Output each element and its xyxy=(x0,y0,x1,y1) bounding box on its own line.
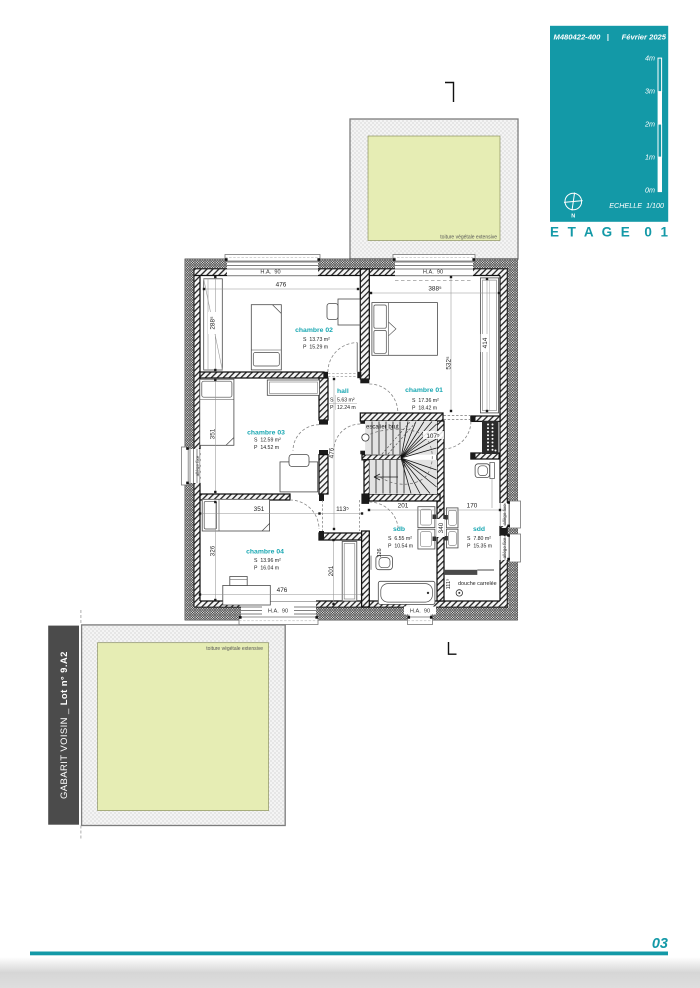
svg-text:S 7.80 m²: S 7.80 m² xyxy=(467,536,491,542)
svg-text:0m: 0m xyxy=(645,186,655,195)
svg-text:E T A G E 0 1: E T A G E 0 1 xyxy=(550,225,668,240)
svg-text:S 12.59 m²: S 12.59 m² xyxy=(254,438,281,444)
svg-text:toiture végétale extensive: toiture végétale extensive xyxy=(206,646,263,652)
svg-text:201: 201 xyxy=(398,503,409,510)
svg-text:M480422-400 |: M480422-400 | xyxy=(554,33,609,42)
svg-text:allège fixe: allège fixe xyxy=(502,537,507,558)
svg-text:P 16.04 m: P 16.04 m xyxy=(254,566,279,572)
svg-text:5.63 m²: 5.63 m² xyxy=(337,398,355,404)
svg-text:414: 414 xyxy=(482,337,489,348)
svg-text:12.24 m: 12.24 m xyxy=(337,405,356,411)
svg-text:4m: 4m xyxy=(645,54,655,63)
svg-text:N: N xyxy=(571,214,575,220)
svg-text:476: 476 xyxy=(277,587,288,594)
svg-text:sdd: sdd xyxy=(473,526,485,533)
svg-text:340: 340 xyxy=(438,522,445,533)
svg-text:H.A. 90: H.A. 90 xyxy=(423,270,443,276)
svg-text:S 17.36 m²: S 17.36 m² xyxy=(412,398,439,404)
svg-text:388⁵: 388⁵ xyxy=(428,286,442,293)
svg-text:P 10.54 m: P 10.54 m xyxy=(388,544,413,550)
svg-text:P 18.42 m: P 18.42 m xyxy=(412,406,437,412)
svg-text:chambre 04: chambre 04 xyxy=(246,549,284,556)
svg-text:chambre 01: chambre 01 xyxy=(405,387,443,394)
svg-text:escalier brut: escalier brut xyxy=(366,425,399,431)
svg-text:03: 03 xyxy=(652,936,668,952)
svg-text:S 6.55 m²: S 6.55 m² xyxy=(388,536,412,542)
svg-text:113⁵: 113⁵ xyxy=(336,506,349,513)
svg-text:douche carrelée: douche carrelée xyxy=(458,581,497,587)
svg-text:allège fixe: allège fixe xyxy=(195,455,200,476)
svg-text:chambre 03: chambre 03 xyxy=(247,430,285,437)
svg-text:hall: hall xyxy=(337,388,349,395)
svg-text:S 13.73 m²: S 13.73 m² xyxy=(303,337,330,343)
svg-text:P 15.35 m: P 15.35 m xyxy=(467,544,492,550)
svg-text:1m: 1m xyxy=(645,153,655,162)
svg-text:allège fixe: allège fixe xyxy=(502,504,507,525)
svg-text:ECHELLE 1/100: ECHELLE 1/100 xyxy=(609,201,664,210)
svg-text:H.A. 90: H.A. 90 xyxy=(268,609,288,615)
svg-text:S 13.96 m²: S 13.96 m² xyxy=(254,558,281,564)
svg-text:chambre 02: chambre 02 xyxy=(295,327,333,334)
svg-text:S: S xyxy=(330,398,334,404)
svg-text:P 15.29 m: P 15.29 m xyxy=(303,345,328,351)
svg-text:sdb: sdb xyxy=(393,526,405,533)
svg-text:P 14.52 m: P 14.52 m xyxy=(254,445,279,451)
svg-text:532⁵: 532⁵ xyxy=(446,356,453,370)
svg-text:P: P xyxy=(330,405,334,411)
svg-text:170: 170 xyxy=(467,503,478,510)
svg-text:476: 476 xyxy=(329,447,336,458)
svg-text:111⁵: 111⁵ xyxy=(445,579,452,590)
svg-text:201: 201 xyxy=(328,565,335,576)
svg-text:H.A. 90: H.A. 90 xyxy=(410,609,430,615)
svg-text:2m: 2m xyxy=(644,120,655,129)
svg-text:351: 351 xyxy=(254,506,265,513)
svg-text:GABARIT VOISIN _ Lot n° 9.A2: GABARIT VOISIN _ Lot n° 9.A2 xyxy=(59,651,70,799)
svg-text:toiture végétale extensive: toiture végétale extensive xyxy=(440,235,497,241)
svg-text:351: 351 xyxy=(210,428,217,439)
svg-text:107⁵: 107⁵ xyxy=(426,433,440,440)
svg-text:288⁵: 288⁵ xyxy=(210,316,217,330)
svg-text:326: 326 xyxy=(377,548,383,557)
svg-text:326: 326 xyxy=(210,545,217,556)
svg-text:H.A. 90: H.A. 90 xyxy=(260,270,280,276)
svg-text:476: 476 xyxy=(276,282,287,289)
svg-text:3m: 3m xyxy=(645,87,655,96)
svg-text:Février 2025: Février 2025 xyxy=(622,33,667,42)
